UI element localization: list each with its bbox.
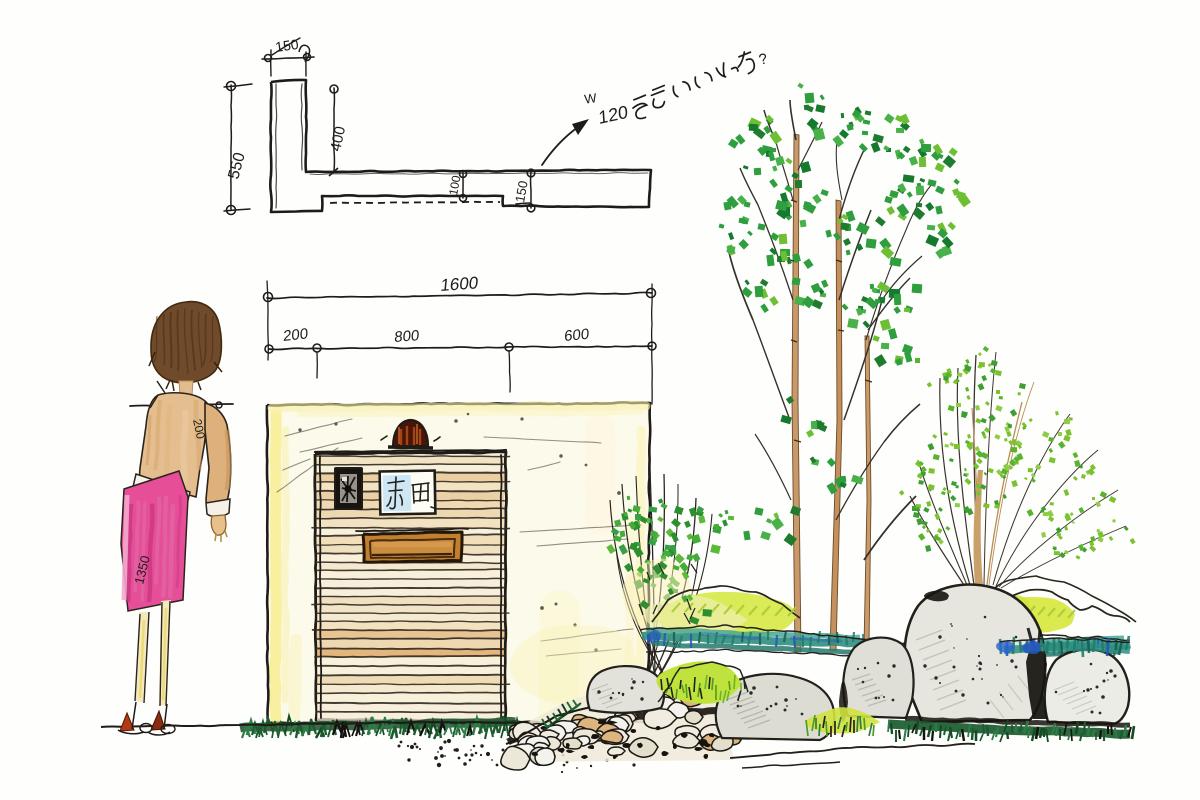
svg-text:200: 200 [283,325,308,345]
svg-text:800: 800 [394,327,420,346]
svg-text:600: 600 [564,326,590,345]
svg-text:1600: 1600 [440,272,480,295]
